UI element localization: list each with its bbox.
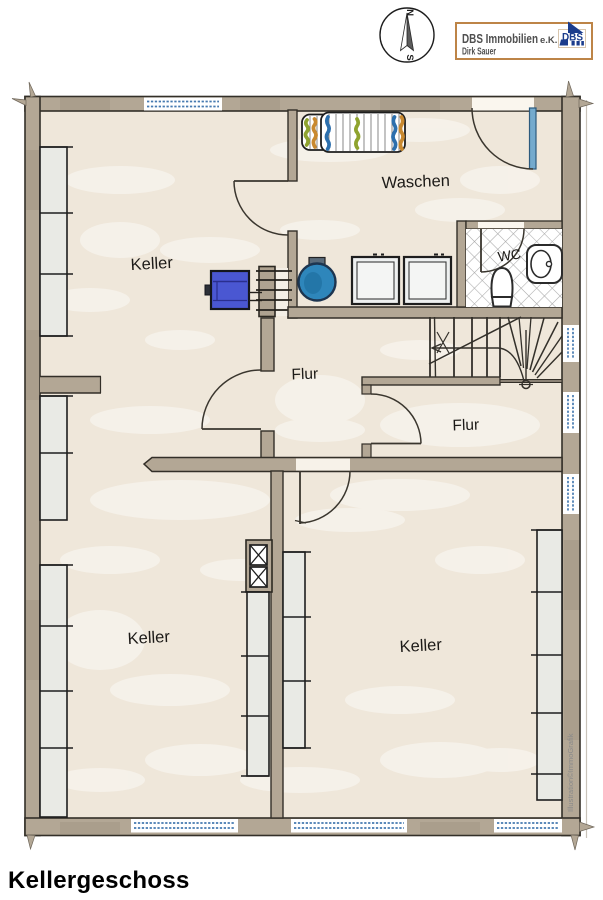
svg-text:Flur: Flur <box>452 417 479 435</box>
svg-text:S: S <box>404 54 415 60</box>
svg-text:Keller: Keller <box>127 628 171 648</box>
svg-text:Flur: Flur <box>291 366 318 384</box>
svg-text:N: N <box>404 9 415 16</box>
svg-text:Dirk Sauer: Dirk Sauer <box>462 47 496 58</box>
svg-text:Waschen: Waschen <box>381 172 450 192</box>
svg-text:e.K.: e.K. <box>540 35 557 46</box>
svg-text:WC: WC <box>497 246 522 265</box>
svg-text:Kellergeschoss: Kellergeschoss <box>8 867 190 894</box>
svg-text:Keller: Keller <box>130 254 174 274</box>
svg-text:Illustration©ImmoGrafik: Illustration©ImmoGrafik <box>566 733 575 812</box>
svg-text:Keller: Keller <box>399 636 443 656</box>
svg-text:DBS Immobilien: DBS Immobilien <box>462 31 538 46</box>
